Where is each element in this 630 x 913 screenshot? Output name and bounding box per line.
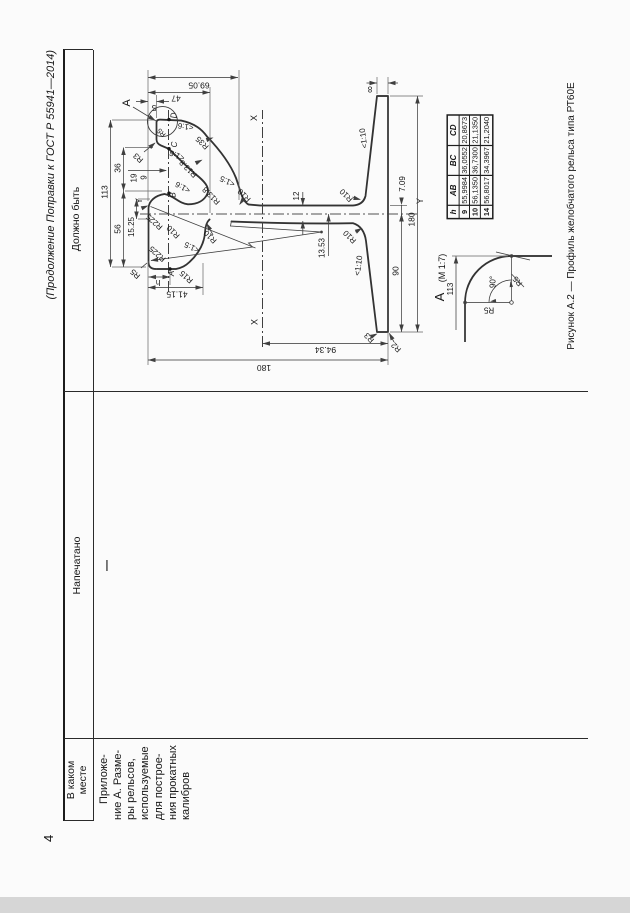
svg-text:20,8673: 20,8673 [460, 117, 469, 144]
svg-text:Y: Y [415, 198, 425, 204]
svg-text:R3: R3 [131, 151, 145, 165]
svg-text:56: 56 [113, 224, 123, 234]
svg-text:8: 8 [367, 85, 372, 94]
svg-text:<1:6: <1:6 [177, 121, 194, 132]
svg-text:R10: R10 [201, 228, 218, 245]
svg-text:R3: R3 [362, 331, 376, 345]
svg-text:90: 90 [391, 266, 401, 276]
svg-text:<1:10: <1:10 [358, 127, 370, 149]
svg-text:36,0552: 36,0552 [460, 147, 469, 174]
svg-text:55,9984: 55,9984 [460, 177, 469, 204]
svg-text:94.34: 94.34 [315, 345, 337, 355]
svg-text:10: 10 [471, 208, 480, 216]
svg-text:41.15: 41.15 [166, 290, 188, 300]
svg-text:15.25: 15.25 [127, 216, 136, 237]
svg-text:R13.8: R13.8 [200, 185, 222, 207]
svg-text:36: 36 [113, 163, 123, 173]
svg-text:9: 9 [140, 175, 149, 180]
svg-text:69.05: 69.05 [188, 81, 210, 91]
svg-text:AB: AB [449, 184, 458, 197]
svg-text:21,2040: 21,2040 [482, 117, 491, 144]
svg-text:(М 1:7): (М 1:7) [437, 254, 447, 283]
svg-text:19: 19 [130, 173, 139, 182]
svg-text:CD: CD [449, 124, 458, 136]
svg-text:180: 180 [407, 212, 417, 226]
svg-text:90°: 90° [489, 276, 498, 288]
svg-text:h: h [156, 278, 160, 287]
svg-text:13.53: 13.53 [318, 237, 327, 258]
svg-text:B: B [169, 192, 178, 198]
svg-text:36,7300: 36,7300 [471, 147, 480, 174]
svg-text:h: h [449, 209, 458, 214]
svg-text:R2: R2 [389, 340, 403, 354]
svg-text:BC: BC [449, 154, 458, 166]
svg-text:X: X [250, 319, 260, 325]
svg-text:56,1350: 56,1350 [471, 177, 480, 204]
svg-text:R15: R15 [177, 268, 194, 285]
svg-text:9: 9 [460, 210, 469, 214]
svg-text:R225: R225 [144, 212, 165, 232]
svg-text:113: 113 [100, 185, 110, 199]
svg-text:R5: R5 [128, 267, 142, 281]
svg-text:56,8017: 56,8017 [482, 177, 491, 204]
svg-text:<1:5: <1:5 [218, 174, 237, 189]
svg-text:14: 14 [482, 207, 491, 216]
svg-text:47: 47 [171, 94, 181, 104]
svg-text:12: 12 [292, 191, 301, 200]
svg-text:R10: R10 [337, 187, 354, 204]
svg-text:180: 180 [257, 363, 271, 373]
svg-text:А: А [432, 292, 447, 301]
svg-text:113: 113 [446, 282, 455, 295]
svg-text:21,1350: 21,1350 [471, 117, 480, 144]
svg-text:34,3967: 34,3967 [482, 147, 491, 174]
svg-text:<1:10: <1:10 [353, 254, 365, 276]
svg-text:R225: R225 [147, 244, 168, 264]
svg-text:R10: R10 [164, 223, 181, 240]
svg-text:C: C [170, 141, 179, 147]
svg-text:7.09: 7.09 [398, 176, 407, 192]
svg-text:А: А [121, 99, 133, 107]
svg-text:X: X [249, 115, 259, 121]
svg-text:R5: R5 [483, 306, 494, 315]
svg-text:<1:5: <1:5 [182, 240, 201, 255]
